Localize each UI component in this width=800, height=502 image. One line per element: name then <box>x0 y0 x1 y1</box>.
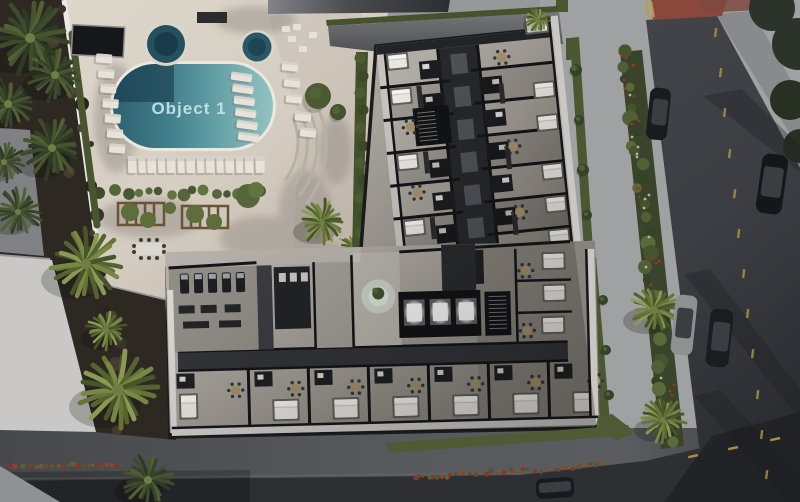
svg-text:Object 1: Object 1 <box>151 99 226 118</box>
